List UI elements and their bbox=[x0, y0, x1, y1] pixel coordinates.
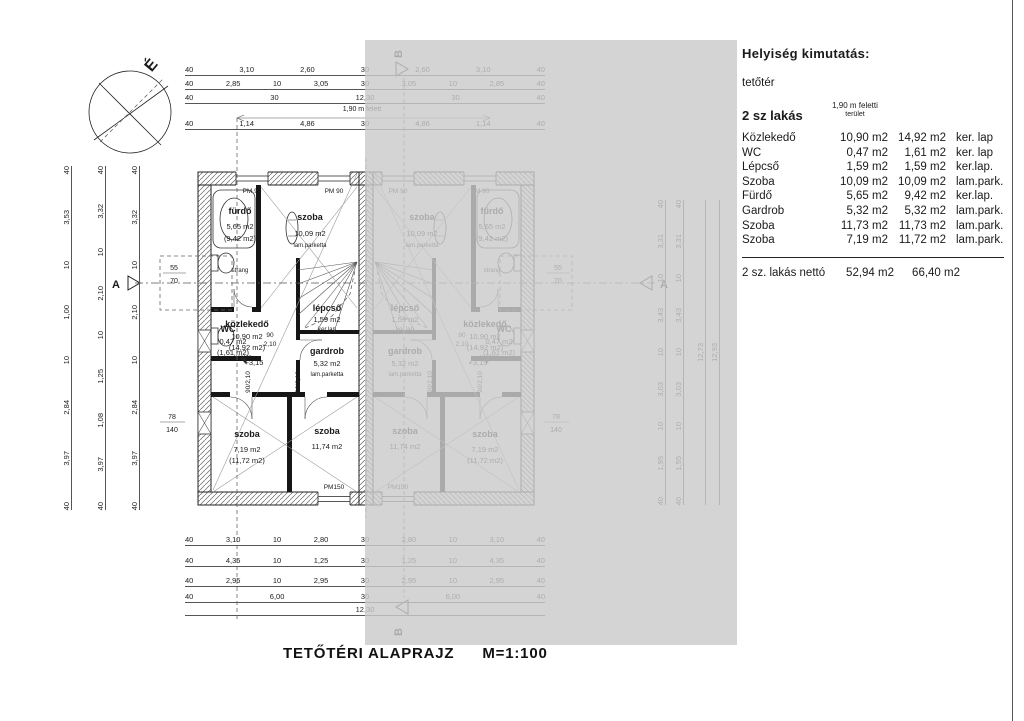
dim-value: 10 bbox=[273, 536, 281, 544]
dim-value: 2,84 bbox=[63, 400, 71, 415]
title-scale: M=1:100 bbox=[482, 645, 547, 662]
room-area-total: (11,72 m2) bbox=[229, 456, 265, 465]
table-cell-above: 0,47 m2 bbox=[830, 146, 888, 161]
table-cell-name: Gardrob bbox=[742, 204, 830, 219]
table-cell-total: 1,61 m2 bbox=[888, 146, 946, 161]
dim-value: 40 bbox=[185, 80, 193, 88]
inactive-unit-overlay bbox=[365, 40, 737, 645]
dim-value: 40 bbox=[185, 557, 193, 565]
table-cell-total: 1,59 m2 bbox=[888, 160, 946, 175]
room-name: szoba bbox=[314, 426, 341, 436]
schedule-unit-row: 2 sz lakás 1,90 m feletti terület bbox=[742, 107, 1012, 131]
table-row: Szoba7,19 m211,72 m2lam.park. bbox=[742, 233, 1012, 248]
dim-value: 40 bbox=[63, 502, 71, 510]
schedule-total-row: 2 sz. lakás nettó 52,94 m2 66,40 m2 bbox=[742, 267, 1012, 279]
sheet-border bbox=[1012, 0, 1013, 721]
column-header-line1: 1,90 m feletti bbox=[812, 101, 898, 111]
dim-value: 10 bbox=[63, 261, 71, 269]
dim-value: 1,25 bbox=[314, 557, 329, 565]
schedule-rows: Közlekedő10,90 m214,92 m2ker. lapWC0,47 … bbox=[742, 131, 1012, 248]
room-schedule: Helyiség kimutatás: tetőtér 2 sz lakás 1… bbox=[742, 46, 1012, 279]
unit-label: 2 sz lakás bbox=[742, 108, 803, 123]
dim-value: 40 bbox=[185, 536, 193, 544]
table-cell-total: 11,72 m2 bbox=[888, 233, 946, 248]
dim-value: 1,00 bbox=[63, 305, 71, 320]
room-area: 11,74 m2 bbox=[312, 442, 343, 451]
table-row: Lépcső1,59 m21,59 m2ker.lap. bbox=[742, 160, 1012, 175]
dim-value: 2,60 bbox=[300, 66, 315, 74]
table-cell-finish: lam.park. bbox=[946, 233, 1012, 248]
riser-note: strang bbox=[232, 268, 249, 274]
sill-top: 55 bbox=[170, 265, 178, 272]
dim-value: 3,53 bbox=[63, 210, 71, 225]
north-arrow: É bbox=[89, 55, 171, 153]
dim-col-left-3: 403,32102,10102,843,9740 bbox=[124, 166, 140, 510]
north-label: É bbox=[140, 55, 162, 76]
room-name: közlekedő bbox=[225, 319, 269, 329]
table-cell-name: WC bbox=[742, 146, 830, 161]
room-name: fürdő bbox=[229, 206, 252, 216]
dim-value: 1,08 bbox=[97, 413, 105, 428]
table-cell-finish: ker. lap bbox=[946, 131, 1012, 146]
table-cell-above: 11,73 m2 bbox=[830, 219, 888, 234]
schedule-heading: Helyiség kimutatás: bbox=[742, 46, 1012, 61]
dim-value: 2,10 bbox=[131, 305, 139, 320]
dim-value: 3,97 bbox=[63, 451, 71, 466]
dim-value: 3,32 bbox=[97, 204, 105, 219]
window-tag: PM 90 bbox=[325, 188, 344, 195]
room-area: 10,90 m2 bbox=[231, 332, 262, 341]
section-label-a: A bbox=[112, 279, 120, 291]
dim-value: 2,95 bbox=[314, 577, 329, 585]
room-finish: ker.lap bbox=[318, 327, 336, 333]
table-cell-above: 5,65 m2 bbox=[830, 189, 888, 204]
dim-value: 3,32 bbox=[131, 210, 139, 225]
sill-bottom: 70 bbox=[170, 278, 178, 285]
dim-value: 2,85 bbox=[226, 80, 241, 88]
dim-value: 3,97 bbox=[97, 457, 105, 472]
window-tag: PM150 bbox=[324, 484, 345, 491]
dim-value: 2,10 bbox=[97, 286, 105, 301]
dim-value: 40 bbox=[97, 502, 105, 510]
dim-value: 10 bbox=[97, 248, 105, 256]
dim-value: 40 bbox=[185, 577, 193, 585]
dim-value: 6,00 bbox=[270, 593, 285, 601]
dim-value: 40 bbox=[185, 593, 193, 601]
window-tag: PM 90 bbox=[243, 188, 262, 195]
dim-col-left-2: 403,32102,10101,251,083,9740 bbox=[90, 166, 106, 510]
table-row: Szoba11,73 m211,73 m2lam.park. bbox=[742, 219, 1012, 234]
schedule-divider bbox=[742, 257, 1004, 258]
table-cell-name: Fürdő bbox=[742, 189, 830, 204]
dim-value: 40 bbox=[97, 166, 105, 174]
dim-value: 2,84 bbox=[131, 400, 139, 415]
schedule-floor-label: tetőtér bbox=[742, 77, 1012, 89]
table-cell-name: Szoba bbox=[742, 219, 830, 234]
dim-value: 30 bbox=[270, 94, 278, 102]
dim-value: 10 bbox=[97, 331, 105, 339]
table-cell-total: 11,73 m2 bbox=[888, 219, 946, 234]
room-area: 5,32 m2 bbox=[313, 359, 340, 368]
room-area: 7,19 m2 bbox=[233, 445, 260, 454]
dim-value: 10 bbox=[273, 557, 281, 565]
table-cell-finish: lam.park. bbox=[946, 175, 1012, 190]
total-area: 66,40 m2 bbox=[894, 267, 960, 279]
sill-bottom: 140 bbox=[166, 427, 178, 434]
dim-value: 40 bbox=[185, 94, 193, 102]
dim-value: 2,95 bbox=[226, 577, 241, 585]
room-area: 5,65 m2 bbox=[226, 222, 253, 231]
dim-col-left-1: 403,53101,00102,843,9740 bbox=[56, 166, 72, 510]
door-tag-width: 90 bbox=[266, 332, 274, 339]
dim-value: 10 bbox=[273, 80, 281, 88]
dim-value: 40 bbox=[185, 120, 193, 128]
room-finish: lam.parketta bbox=[293, 243, 327, 249]
sill-top: 78 bbox=[168, 414, 176, 421]
dim-value: 3,97 bbox=[131, 451, 139, 466]
table-cell-above: 7,19 m2 bbox=[830, 233, 888, 248]
dim-value: 4,86 bbox=[300, 120, 315, 128]
room-name: gardrob bbox=[310, 346, 345, 356]
room-name: lépcső bbox=[313, 303, 342, 313]
table-cell-name: Szoba bbox=[742, 233, 830, 248]
room-area: 10,09 m2 bbox=[294, 229, 325, 238]
table-cell-total: 9,42 m2 bbox=[888, 189, 946, 204]
dim-value: 2,80 bbox=[314, 536, 329, 544]
table-cell-name: Közlekedő bbox=[742, 131, 830, 146]
table-row: Gardrob5,32 m25,32 m2lam.park. bbox=[742, 204, 1012, 219]
table-row: Fürdő5,65 m29,42 m2ker.lap. bbox=[742, 189, 1012, 204]
table-cell-above: 10,09 m2 bbox=[830, 175, 888, 190]
table-cell-finish: ker.lap. bbox=[946, 160, 1012, 175]
dim-value: 1,14 bbox=[239, 120, 254, 128]
title-text: TETŐTÉRI ALAPRAJZ bbox=[283, 645, 454, 662]
column-header-line2: terület bbox=[812, 111, 898, 120]
room-name: szoba bbox=[234, 429, 261, 439]
dim-value: 10 bbox=[273, 577, 281, 585]
table-cell-total: 5,32 m2 bbox=[888, 204, 946, 219]
table-row: Szoba10,09 m210,09 m2lam.park. bbox=[742, 175, 1012, 190]
dim-value: 4,35 bbox=[226, 557, 241, 565]
dim-value: 3,05 bbox=[314, 80, 329, 88]
total-above: 52,94 m2 bbox=[842, 267, 894, 279]
table-row: Közlekedő10,90 m214,92 m2ker. lap bbox=[742, 131, 1012, 146]
dim-value: 10 bbox=[63, 356, 71, 364]
column-header: 1,90 m feletti terület bbox=[812, 101, 898, 120]
table-cell-finish: ker.lap. bbox=[946, 189, 1012, 204]
dim-value: 3,10 bbox=[239, 66, 254, 74]
dim-value: 1,25 bbox=[97, 369, 105, 384]
dim-value: 40 bbox=[131, 166, 139, 174]
room-labels-left-unit: fürdő 5,65 m2 (9,42 m2) strang szoba 10,… bbox=[217, 188, 345, 491]
room-area-total: (14,92 m2) bbox=[229, 343, 266, 352]
table-cell-above: 10,90 m2 bbox=[830, 131, 888, 146]
dim-value: 40 bbox=[63, 166, 71, 174]
dim-value: 10 bbox=[131, 261, 139, 269]
door-tag: 90/2,10 bbox=[295, 371, 302, 393]
door-tag: 90/2,10 bbox=[245, 371, 252, 393]
drawing-sheet: É A A B B 1,90 m felett fürdő 5,65 m2 (9… bbox=[0, 0, 1024, 721]
total-label: 2 sz. lakás nettó bbox=[742, 267, 842, 279]
table-cell-name: Lépcső bbox=[742, 160, 830, 175]
dim-value: 10 bbox=[131, 356, 139, 364]
room-area-total: (9,42 m2) bbox=[224, 234, 257, 243]
dim-value: 40 bbox=[185, 66, 193, 74]
table-cell-finish: lam.park. bbox=[946, 204, 1012, 219]
room-area: 1,59 m2 bbox=[313, 315, 340, 324]
room-name: szoba bbox=[297, 212, 324, 222]
dim-value: 3,10 bbox=[226, 536, 241, 544]
table-cell-finish: ker. lap bbox=[946, 146, 1012, 161]
door-tag-height: 2,10 bbox=[264, 341, 277, 348]
table-cell-total: 14,92 m2 bbox=[888, 131, 946, 146]
table-cell-above: 1,59 m2 bbox=[830, 160, 888, 175]
table-cell-total: 10,09 m2 bbox=[888, 175, 946, 190]
level-mark: +3,15 bbox=[245, 358, 264, 367]
table-cell-finish: lam.park. bbox=[946, 219, 1012, 234]
table-cell-name: Szoba bbox=[742, 175, 830, 190]
table-row: WC0,47 m21,61 m2ker. lap bbox=[742, 146, 1012, 161]
dim-value: 40 bbox=[131, 502, 139, 510]
room-finish: lam.parketta bbox=[310, 372, 344, 378]
drawing-title: TETŐTÉRI ALAPRAJZ M=1:100 bbox=[283, 645, 548, 662]
table-cell-above: 5,32 m2 bbox=[830, 204, 888, 219]
